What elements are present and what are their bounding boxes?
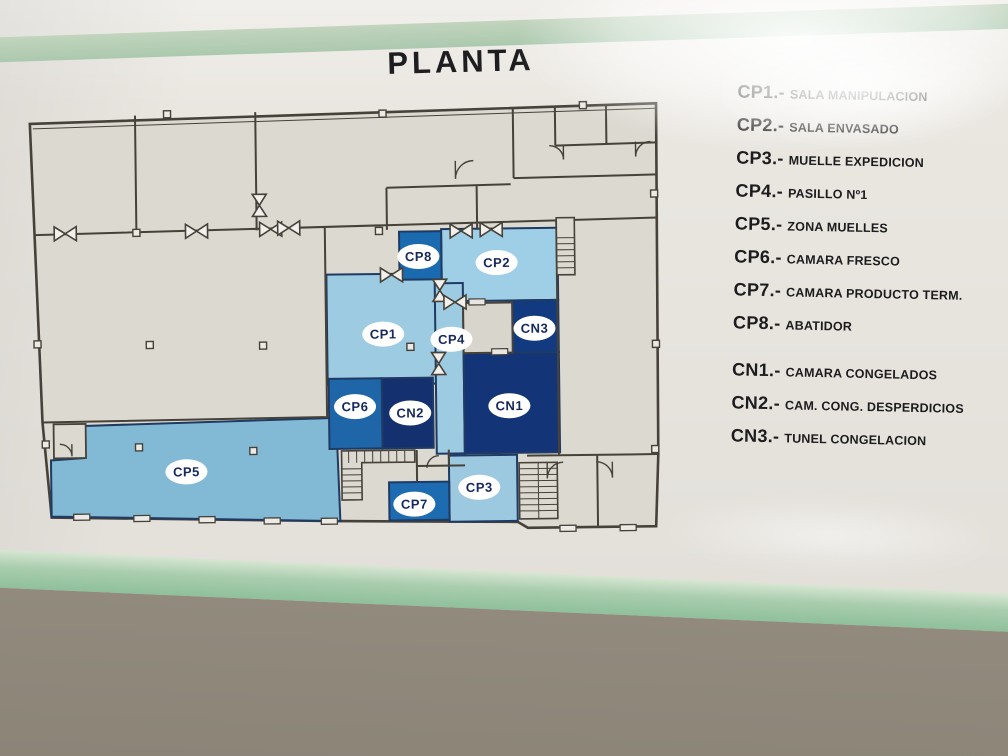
- legend-item-cp4: CP4.-PASILLO Nº1: [735, 180, 1003, 208]
- svg-text:CP4: CP4: [438, 332, 465, 347]
- legend-item-cp6: CP6.-CAMARA FRESCO: [734, 246, 1002, 274]
- svg-text:CP1: CP1: [370, 326, 397, 341]
- legend-item-cp5: CP5.-ZONA MUELLES: [735, 213, 1003, 241]
- svg-text:CN2: CN2: [396, 405, 424, 420]
- legend: CP1.-SALA MANIPULACIONCP2.-SALA ENVASADO…: [730, 81, 1005, 463]
- legend-item-cn1: CN1.-CAMARA CONGELADOS: [732, 359, 1000, 387]
- legend-desc: TUNEL CONGELACION: [784, 431, 926, 448]
- legend-desc: CAM. CONG. DESPERDICIOS: [785, 398, 964, 415]
- legend-desc: CAMARA CONGELADOS: [785, 365, 937, 382]
- legend-item-cp2: CP2.-SALA ENVASADO: [737, 114, 1005, 142]
- photo-background: PLANTA: [0, 0, 1008, 756]
- stairs-icon: [556, 218, 575, 275]
- svg-text:CP8: CP8: [405, 249, 432, 264]
- room-unlabeled: [463, 302, 513, 353]
- floor-plan: CP5CP1CP2CP4CP3CP8CP6CP7CN2CN1CN3: [21, 96, 678, 550]
- svg-text:CP7: CP7: [401, 496, 428, 511]
- legend-code: CP1.-: [737, 81, 785, 102]
- legend-code: CP5.-: [735, 213, 783, 234]
- legend-code: CN2.-: [731, 392, 780, 413]
- legend-code: CP4.-: [735, 180, 783, 201]
- legend-code: CN3.-: [731, 425, 780, 446]
- legend-code: CP3.-: [736, 147, 784, 168]
- svg-text:CN1: CN1: [496, 398, 524, 413]
- legend-cn-group: CN1.-CAMARA CONGELADOSCN2.-CAM. CONG. DE…: [731, 359, 1001, 453]
- legend-code: CP6.-: [734, 246, 782, 267]
- svg-text:CP5: CP5: [173, 464, 200, 479]
- stairs-icon: [519, 462, 558, 519]
- legend-desc: CAMARA PRODUCTO TERM.: [786, 285, 963, 302]
- legend-desc: PASILLO Nº1: [788, 186, 868, 202]
- legend-code: CP7.-: [733, 279, 781, 300]
- legend-cp-group: CP1.-SALA MANIPULACIONCP2.-SALA ENVASADO…: [733, 81, 1006, 340]
- legend-item-cp3: CP3.-MUELLE EXPEDICION: [736, 147, 1004, 175]
- legend-desc: ABATIDOR: [785, 318, 852, 333]
- legend-desc: MUELLE EXPEDICION: [789, 153, 925, 170]
- legend-desc: ZONA MUELLES: [787, 219, 888, 235]
- legend-code: CN1.-: [732, 359, 781, 380]
- svg-text:CP3: CP3: [466, 480, 493, 495]
- legend-item-cn3: CN3.-TUNEL CONGELACION: [731, 425, 999, 453]
- legend-item-cp8: CP8.-ABATIDOR: [733, 312, 1001, 340]
- legend-desc: SALA ENVASADO: [789, 120, 899, 136]
- room-unlabeled: [54, 424, 86, 458]
- svg-text:CP6: CP6: [342, 399, 369, 414]
- svg-text:CN3: CN3: [521, 321, 549, 336]
- legend-item-cn2: CN2.-CAM. CONG. DESPERDICIOS: [731, 392, 999, 420]
- legend-item-cp1: CP1.-SALA MANIPULACION: [737, 81, 1005, 109]
- legend-item-cp7: CP7.-CAMARA PRODUCTO TERM.: [733, 279, 1001, 307]
- legend-desc: SALA MANIPULACION: [790, 87, 928, 104]
- legend-code: CP8.-: [733, 312, 781, 333]
- legend-desc: CAMARA FRESCO: [787, 252, 900, 268]
- legend-code: CP2.-: [737, 114, 785, 135]
- svg-text:CP2: CP2: [483, 255, 510, 270]
